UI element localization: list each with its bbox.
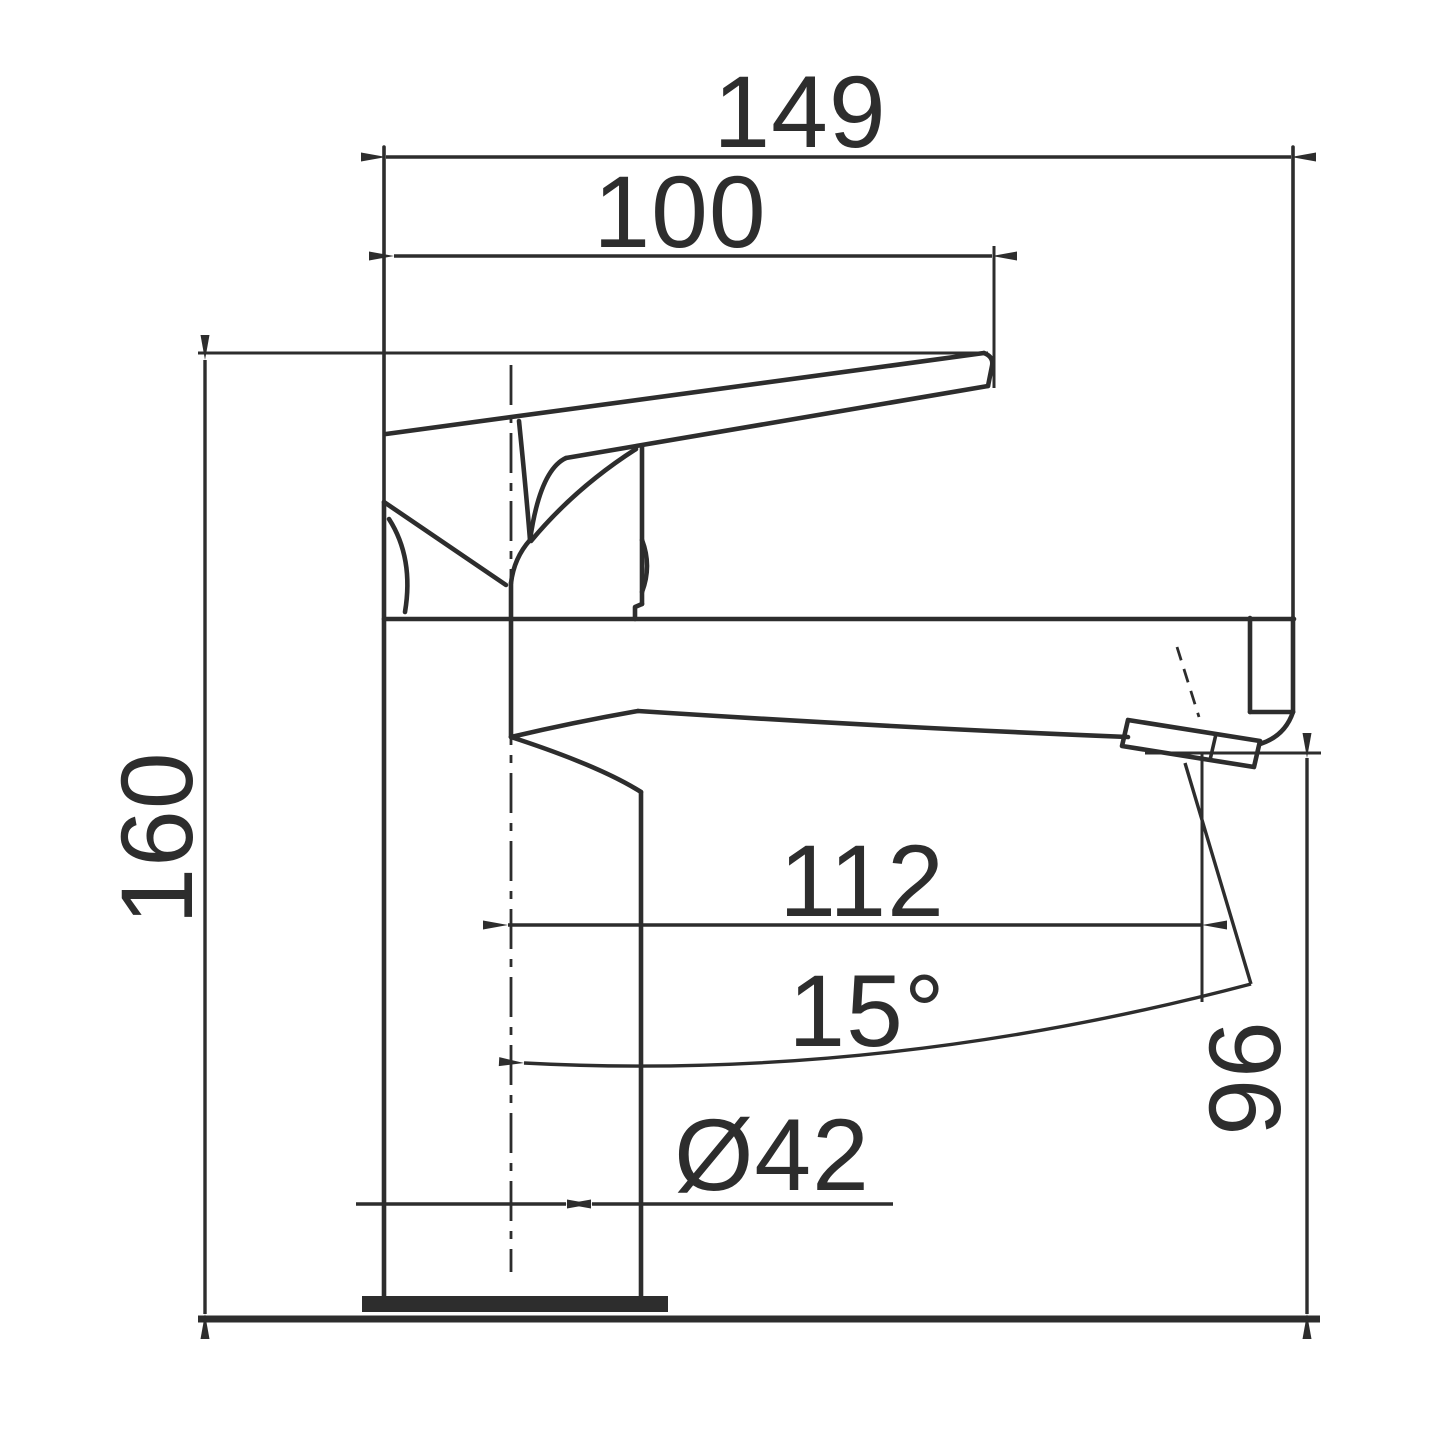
aerator-ring [1122, 720, 1260, 767]
aerator-centerline [1177, 647, 1199, 717]
spout-body-junction-upper [511, 711, 638, 737]
block-to-aerator-curve [1260, 712, 1293, 744]
handle-underside-curl [530, 458, 566, 540]
aerator-detail-line [1210, 734, 1216, 760]
angle-reference-line [1185, 763, 1251, 984]
handle-underside [566, 386, 988, 458]
label-spout-reach: 112 [779, 824, 945, 938]
handle-top-edge [386, 353, 984, 434]
dimension-labels: 149 100 112 15° Ø42 160 96 [100, 55, 1302, 1212]
label-total-length: 149 [713, 55, 886, 169]
neck-front-curve [511, 540, 530, 583]
label-body-diameter: Ø42 [674, 1098, 870, 1212]
body-collar [384, 446, 647, 737]
faucet-dimension-drawing: 149 100 112 15° Ø42 160 96 [0, 0, 1445, 1445]
spout-end-block [1250, 147, 1293, 744]
spout-body-junction-lower [511, 737, 641, 792]
handle-inner-edge [531, 449, 636, 541]
lever-handle [386, 353, 992, 583]
spout-underside-group [511, 711, 1128, 792]
handle-tip-face [984, 353, 992, 386]
spout-underside [638, 711, 1128, 737]
base-plate [362, 1296, 668, 1312]
aerator [1122, 720, 1260, 767]
label-outlet-height: 96 [1188, 1020, 1302, 1135]
label-spout-angle: 15° [788, 954, 945, 1068]
handle-bend-front [519, 421, 530, 540]
technical-drawing-canvas: 149 100 112 15° Ø42 160 96 [0, 0, 1445, 1445]
label-handle-length: 100 [593, 155, 766, 269]
label-overall-height: 160 [100, 751, 214, 924]
collar-inner-curve [389, 519, 407, 612]
